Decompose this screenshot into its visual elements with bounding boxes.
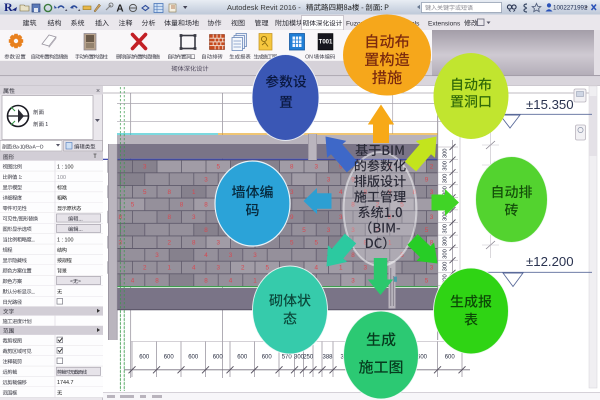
svg-text:100: 100 bbox=[57, 175, 66, 181]
svg-text:300: 300 bbox=[443, 237, 449, 247]
svg-text:1: 1 bbox=[339, 265, 343, 272]
svg-text:2: 2 bbox=[430, 164, 434, 171]
svg-text:R: R bbox=[4, 0, 13, 14]
svg-text:T001: T001 bbox=[319, 40, 333, 46]
svg-text:3: 3 bbox=[155, 252, 159, 259]
svg-text:3: 3 bbox=[290, 189, 294, 196]
svg-text:3: 3 bbox=[204, 176, 208, 183]
svg-text:4: 4 bbox=[229, 277, 233, 284]
svg-text:2: 2 bbox=[167, 239, 171, 246]
svg-text:300: 300 bbox=[443, 262, 449, 272]
svg-text:8: 8 bbox=[167, 189, 171, 196]
svg-text:300: 300 bbox=[443, 161, 449, 171]
svg-text:1 : 100: 1 : 100 bbox=[57, 164, 74, 170]
svg-text:3: 3 bbox=[143, 164, 147, 171]
svg-text:600: 600 bbox=[237, 355, 248, 361]
svg-text:8: 8 bbox=[204, 202, 208, 209]
svg-text:5: 5 bbox=[216, 164, 220, 171]
svg-text:4: 4 bbox=[192, 265, 196, 272]
svg-text:5: 5 bbox=[290, 239, 294, 246]
svg-text:5: 5 bbox=[425, 227, 429, 234]
svg-text:300: 300 bbox=[443, 249, 449, 259]
svg-text:1: 1 bbox=[253, 277, 257, 284]
svg-text:4: 4 bbox=[204, 252, 208, 259]
svg-text:8: 8 bbox=[204, 227, 208, 234]
svg-text:5: 5 bbox=[302, 227, 306, 234]
svg-text:300: 300 bbox=[443, 224, 449, 234]
svg-text:600: 600 bbox=[445, 355, 456, 361]
svg-text:8: 8 bbox=[290, 164, 294, 171]
svg-text:1002271992: 1002271992 bbox=[553, 4, 588, 11]
svg-text:9: 9 bbox=[290, 214, 294, 221]
svg-text:4: 4 bbox=[131, 277, 135, 284]
svg-text:1: 1 bbox=[167, 265, 171, 272]
svg-text:600: 600 bbox=[188, 355, 199, 361]
svg-text:2: 2 bbox=[241, 265, 245, 272]
svg-text:388: 388 bbox=[322, 355, 333, 361]
svg-text:A: A bbox=[116, 4, 123, 15]
svg-text:3: 3 bbox=[216, 239, 220, 246]
svg-text:4: 4 bbox=[314, 265, 318, 272]
svg-text:8: 8 bbox=[351, 252, 355, 259]
svg-text:8: 8 bbox=[192, 239, 196, 246]
svg-text:300: 300 bbox=[443, 174, 449, 184]
svg-text:300: 300 bbox=[443, 148, 449, 158]
svg-text:3: 3 bbox=[339, 214, 343, 221]
svg-text:3: 3 bbox=[229, 252, 233, 259]
svg-text:3: 3 bbox=[314, 164, 318, 171]
svg-text:ON: ON bbox=[305, 55, 313, 61]
svg-text:4: 4 bbox=[339, 189, 343, 196]
svg-text:8: 8 bbox=[180, 202, 184, 209]
svg-text:3: 3 bbox=[430, 214, 434, 221]
svg-text:3: 3 bbox=[327, 176, 331, 183]
svg-text:×: × bbox=[96, 88, 100, 95]
svg-text:8: 8 bbox=[167, 214, 171, 221]
svg-text:3: 3 bbox=[327, 227, 331, 234]
svg-text:Extensions: Extensions bbox=[428, 21, 461, 28]
svg-text:3: 3 bbox=[363, 265, 367, 272]
svg-text:570: 570 bbox=[282, 355, 293, 361]
svg-text:5: 5 bbox=[265, 265, 269, 272]
svg-text:8: 8 bbox=[204, 277, 208, 284]
svg-text:5: 5 bbox=[143, 189, 147, 196]
svg-text:250: 250 bbox=[303, 355, 314, 361]
svg-text:600: 600 bbox=[213, 355, 224, 361]
svg-text:±12.200: ±12.200 bbox=[526, 254, 574, 269]
svg-text:8: 8 bbox=[155, 277, 159, 284]
svg-text:Autodesk Revit 2016 -: Autodesk Revit 2016 - bbox=[227, 3, 301, 12]
svg-text:5: 5 bbox=[314, 239, 318, 246]
svg-text:9: 9 bbox=[425, 176, 429, 183]
svg-text:600: 600 bbox=[262, 355, 273, 361]
svg-text:1 : 100: 1 : 100 bbox=[57, 237, 74, 243]
svg-text:3: 3 bbox=[351, 277, 355, 284]
svg-text:3: 3 bbox=[430, 265, 434, 272]
svg-text:3: 3 bbox=[192, 214, 196, 221]
svg-text:600: 600 bbox=[164, 355, 175, 361]
svg-text:3: 3 bbox=[216, 265, 220, 272]
svg-text:2: 2 bbox=[143, 265, 147, 272]
svg-text:±15.350: ±15.350 bbox=[526, 97, 574, 112]
svg-text:5: 5 bbox=[425, 277, 429, 284]
svg-text:1: 1 bbox=[192, 189, 196, 196]
svg-text:1744.7: 1744.7 bbox=[57, 380, 74, 386]
svg-text:3: 3 bbox=[253, 252, 257, 259]
svg-text:5: 5 bbox=[131, 202, 135, 209]
svg-text:600: 600 bbox=[139, 355, 150, 361]
